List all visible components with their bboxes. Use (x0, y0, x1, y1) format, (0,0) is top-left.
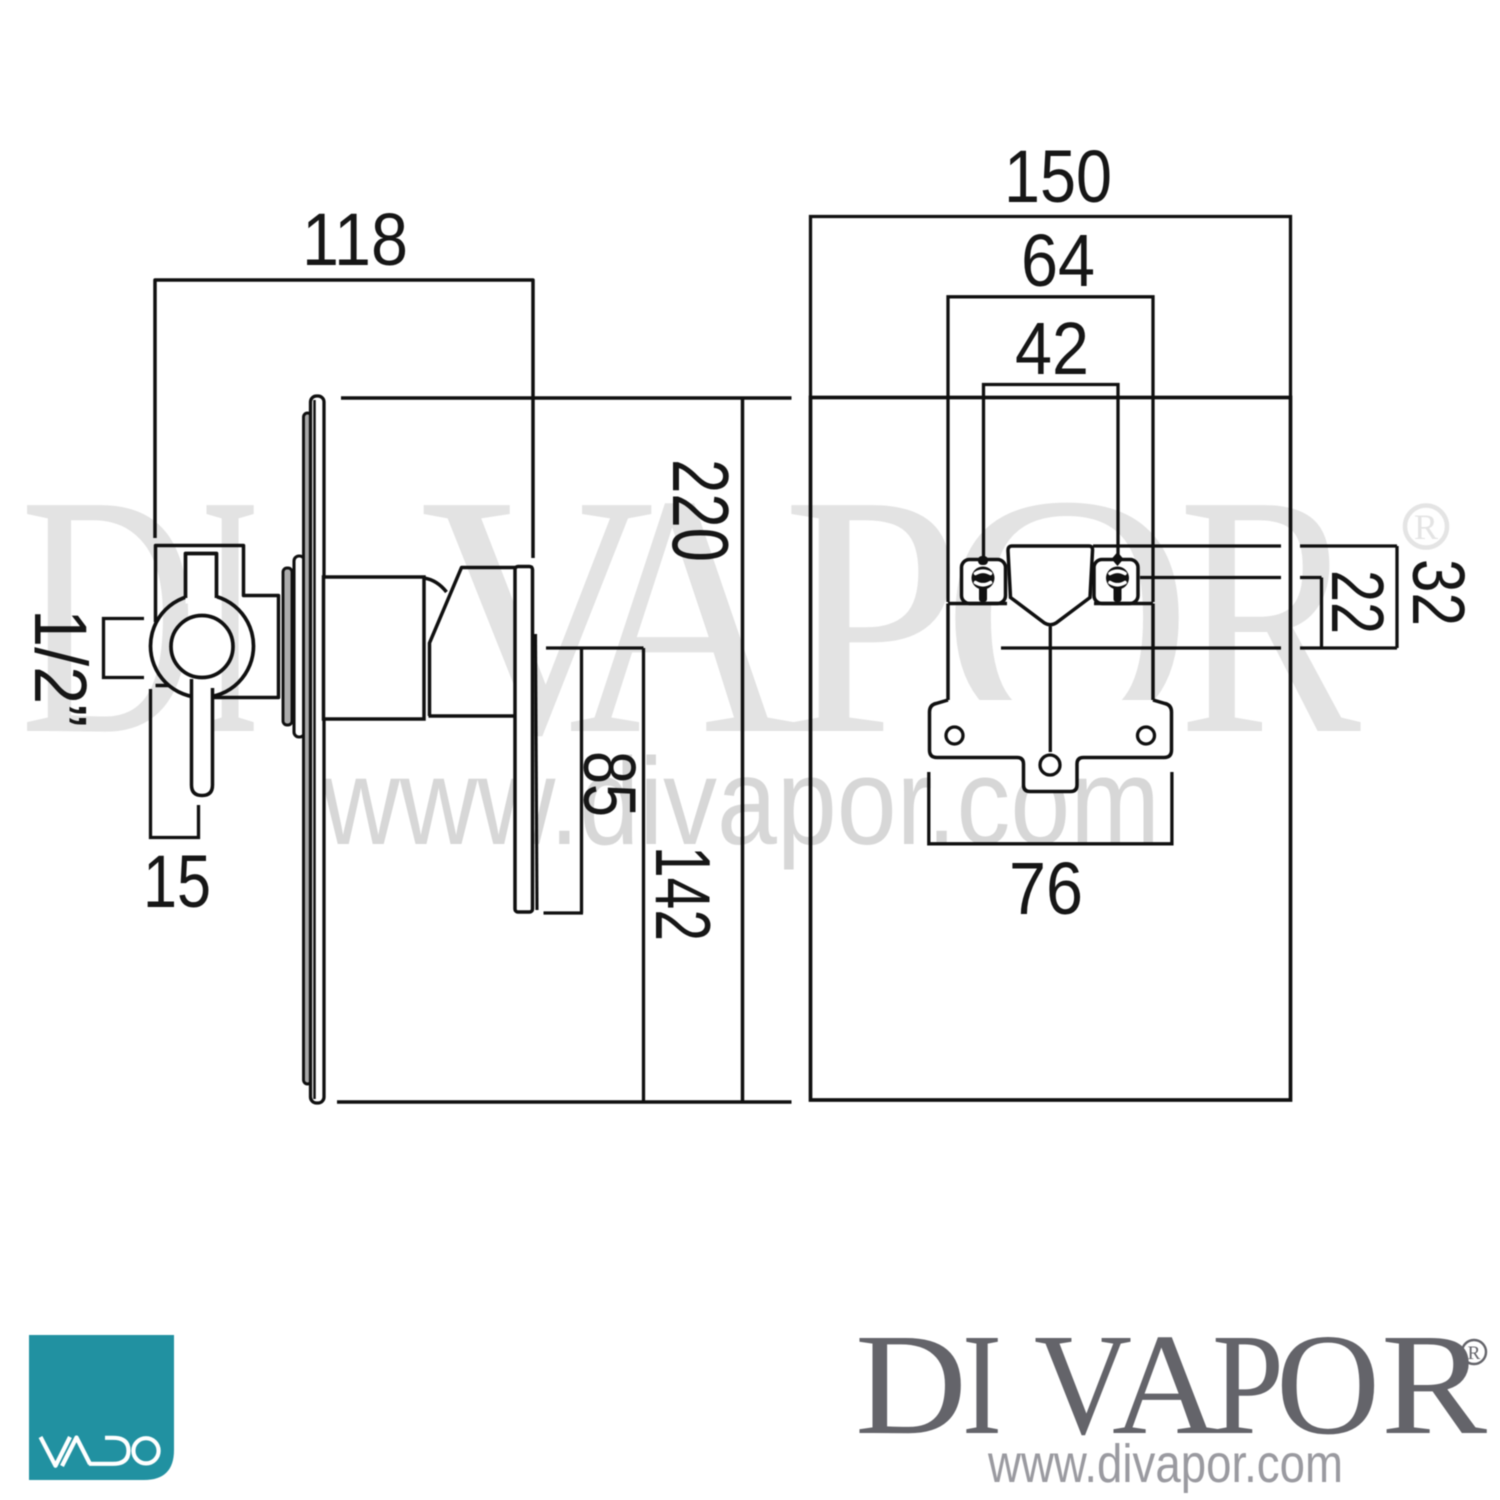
svg-text:R: R (1468, 1343, 1481, 1364)
svg-text:42: 42 (1015, 307, 1089, 390)
svg-text:R: R (1381, 1305, 1487, 1465)
svg-text:64: 64 (1021, 219, 1095, 302)
svg-text:15: 15 (143, 840, 211, 923)
svg-text:76: 76 (1009, 847, 1083, 930)
svg-text:1/2”: 1/2” (19, 609, 102, 727)
svg-text:85: 85 (568, 751, 651, 817)
svg-text:220: 220 (656, 459, 745, 562)
svg-text:www.divapor.com: www.divapor.com (987, 1434, 1343, 1494)
svg-text:R: R (1414, 507, 1438, 547)
svg-text:118: 118 (302, 198, 408, 281)
svg-text:32: 32 (1397, 559, 1480, 626)
svg-text:22: 22 (1316, 570, 1399, 634)
svg-text:150: 150 (1004, 135, 1112, 218)
svg-text:142: 142 (639, 846, 727, 941)
svg-text:D: D (855, 1305, 967, 1465)
